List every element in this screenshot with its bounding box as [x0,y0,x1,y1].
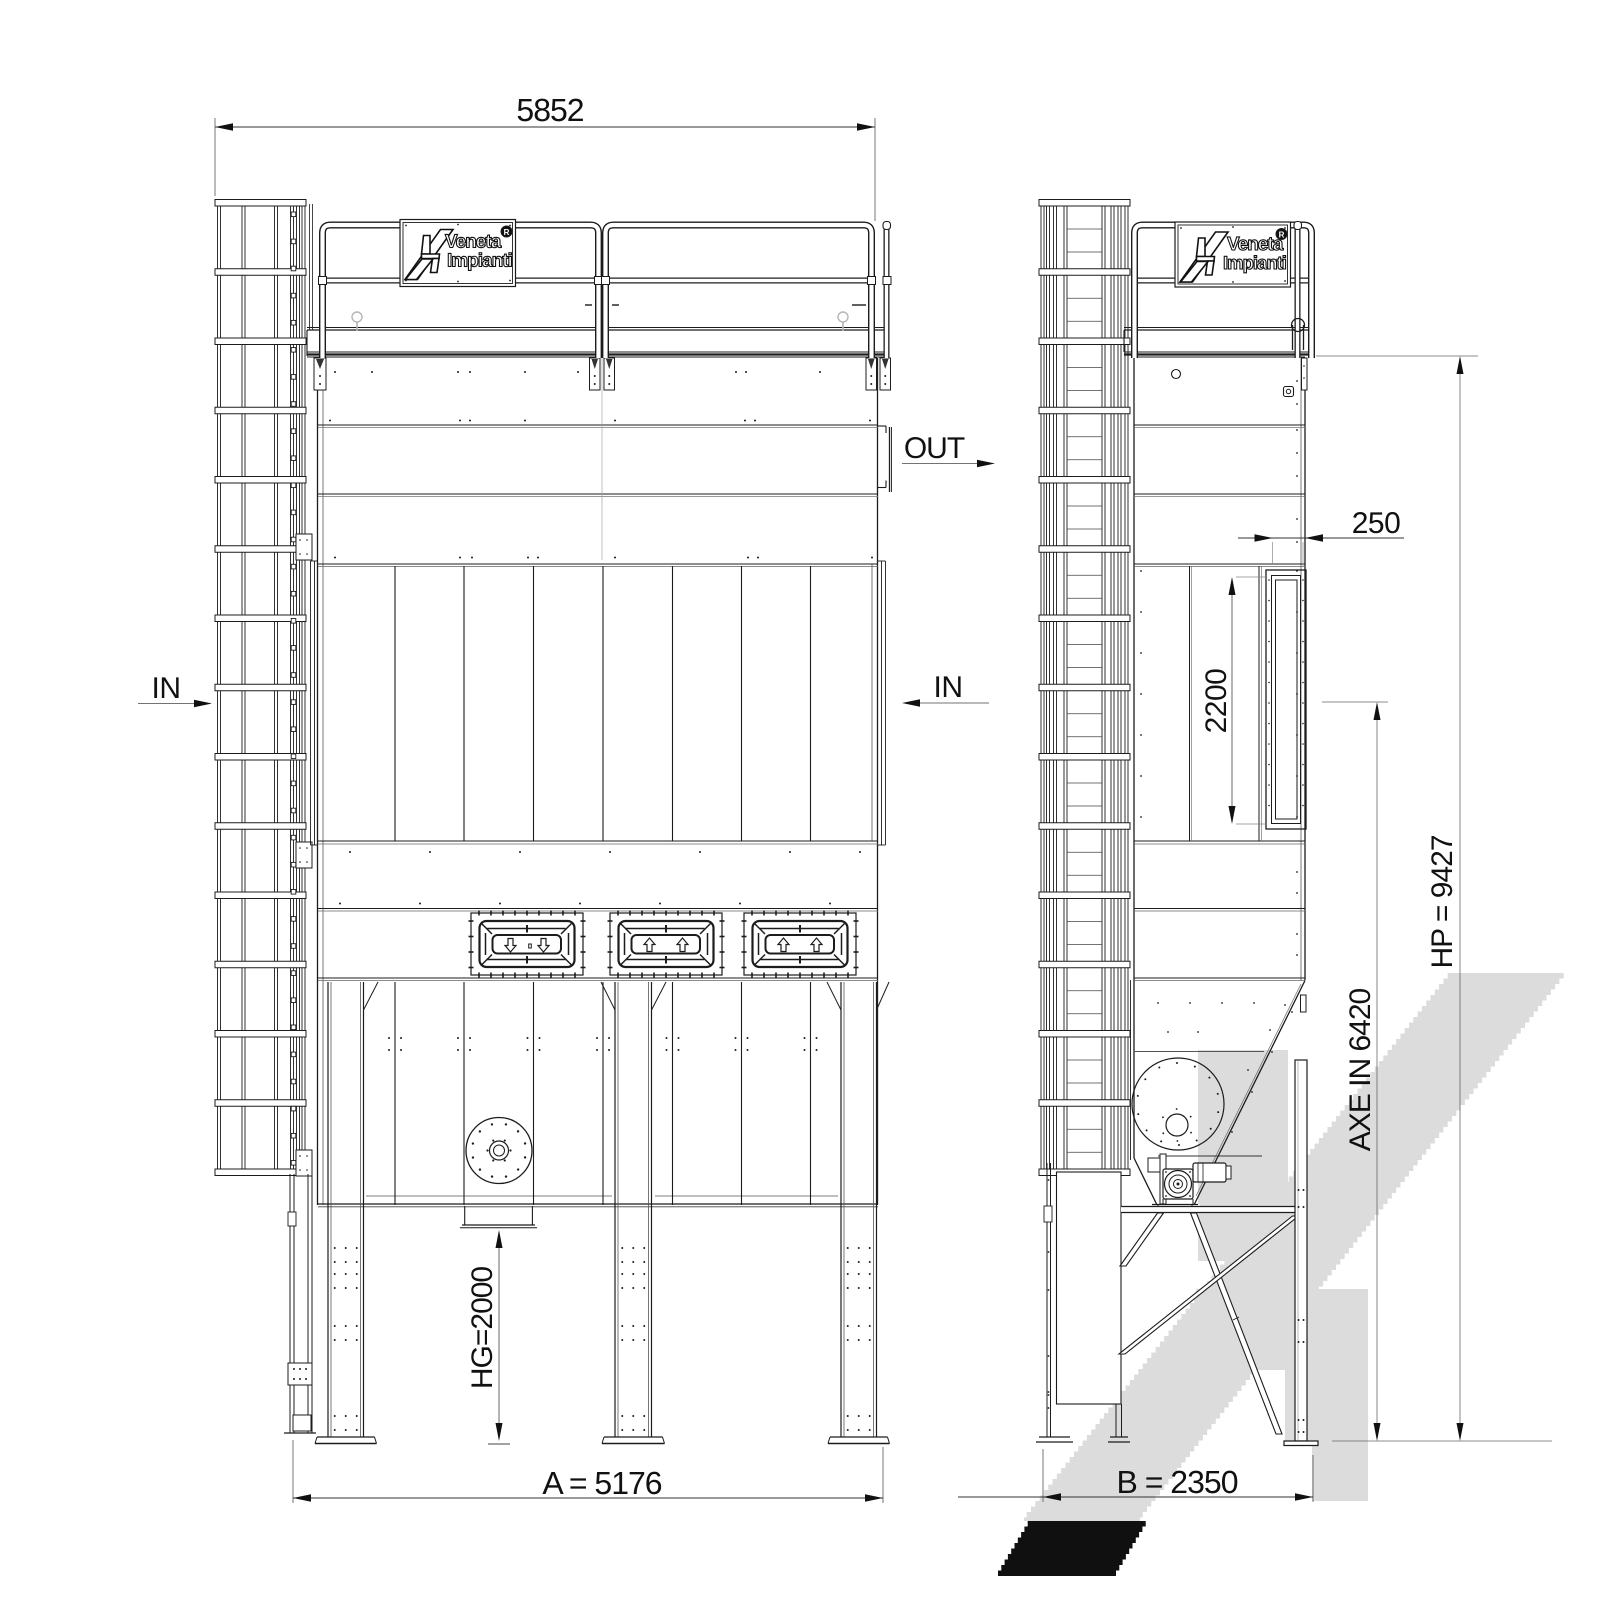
svg-text:2200: 2200 [1200,669,1233,734]
svg-text:Veneta: Veneta [445,232,502,253]
svg-text:5852: 5852 [516,92,583,128]
svg-text:R: R [504,228,510,237]
svg-text:IN: IN [933,671,962,704]
svg-text:IN: IN [151,672,180,705]
svg-text:R: R [1279,231,1285,240]
svg-text:Impianti: Impianti [1223,252,1286,273]
svg-text:B = 2350: B = 2350 [1116,1464,1237,1500]
svg-text:HG=2000: HG=2000 [466,1267,499,1390]
svg-text:OUT: OUT [904,432,965,465]
svg-text:Impianti: Impianti [447,251,512,272]
svg-text:A = 5176: A = 5176 [542,1465,661,1501]
svg-text:AXE IN 6420: AXE IN 6420 [1344,988,1377,1151]
svg-text:HP = 9427: HP = 9427 [1426,835,1459,968]
svg-text:250: 250 [1352,507,1401,540]
